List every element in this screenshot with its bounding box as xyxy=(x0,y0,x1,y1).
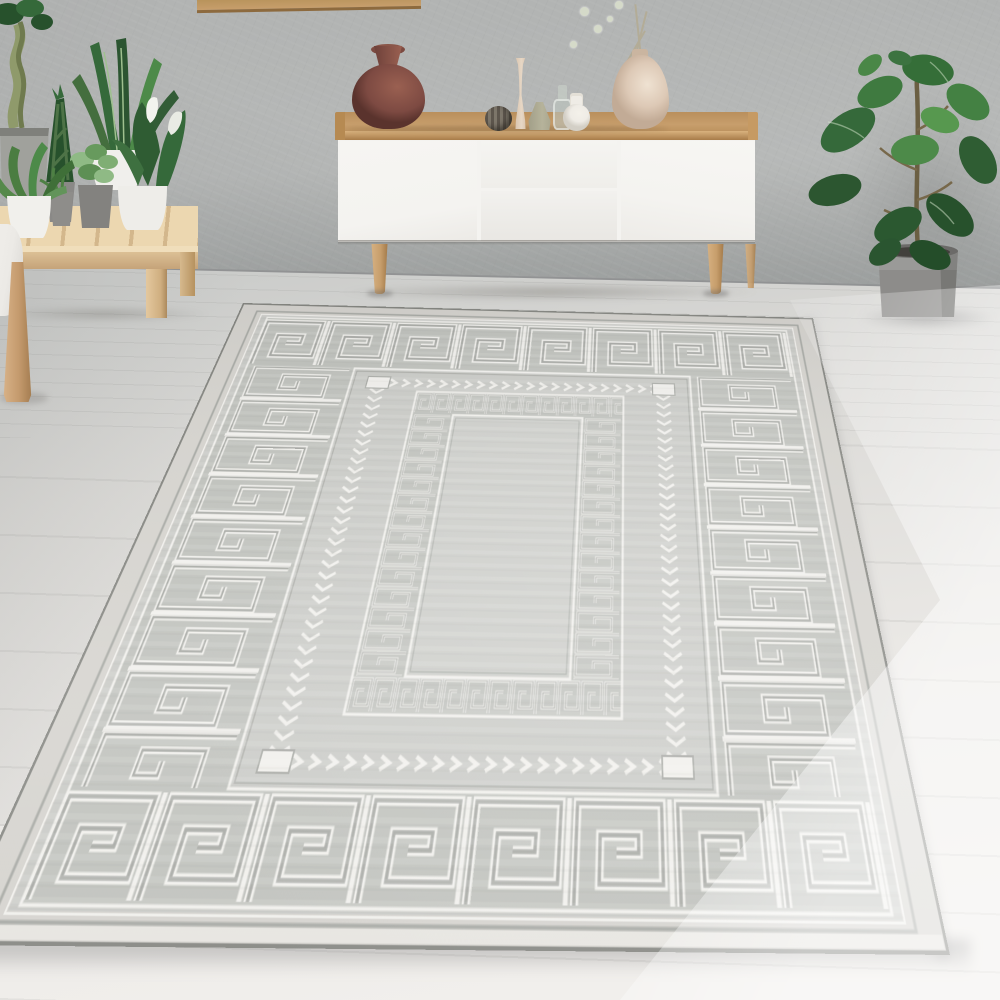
pompom-bloom xyxy=(607,16,613,22)
clay-vase xyxy=(352,64,425,129)
ribbed-vase xyxy=(485,106,512,131)
sideboard-tray-edge xyxy=(338,131,755,140)
sideboard-bottom-drawer xyxy=(481,191,617,241)
concrete-pot xyxy=(0,128,49,196)
pompom-bloom xyxy=(615,1,623,9)
sideboard-under-shadow xyxy=(338,240,755,245)
living-room-photo xyxy=(0,0,1000,1000)
braided-tree xyxy=(0,0,53,128)
sideboard-tray-lip-left xyxy=(335,112,345,140)
sideboard-tray-lip-right xyxy=(748,112,758,140)
sideboard-right-door xyxy=(621,141,755,241)
fiddle-leaf-fig xyxy=(780,30,1000,330)
fig-leaves xyxy=(805,48,1000,251)
left-plant-group xyxy=(0,0,210,340)
concrete-pot-rim xyxy=(0,128,49,136)
fittonia xyxy=(70,144,118,228)
sideboard-left-door xyxy=(340,141,477,241)
bottle-vase xyxy=(563,104,590,131)
leg-shadow xyxy=(367,290,393,297)
leg-shadow xyxy=(703,290,729,297)
sideboard-top-drawer xyxy=(481,141,617,188)
sideboard-shadow xyxy=(340,283,760,301)
pompom-bloom xyxy=(580,7,589,16)
pompom-bloom xyxy=(594,25,602,33)
pompom-bloom xyxy=(570,41,577,48)
